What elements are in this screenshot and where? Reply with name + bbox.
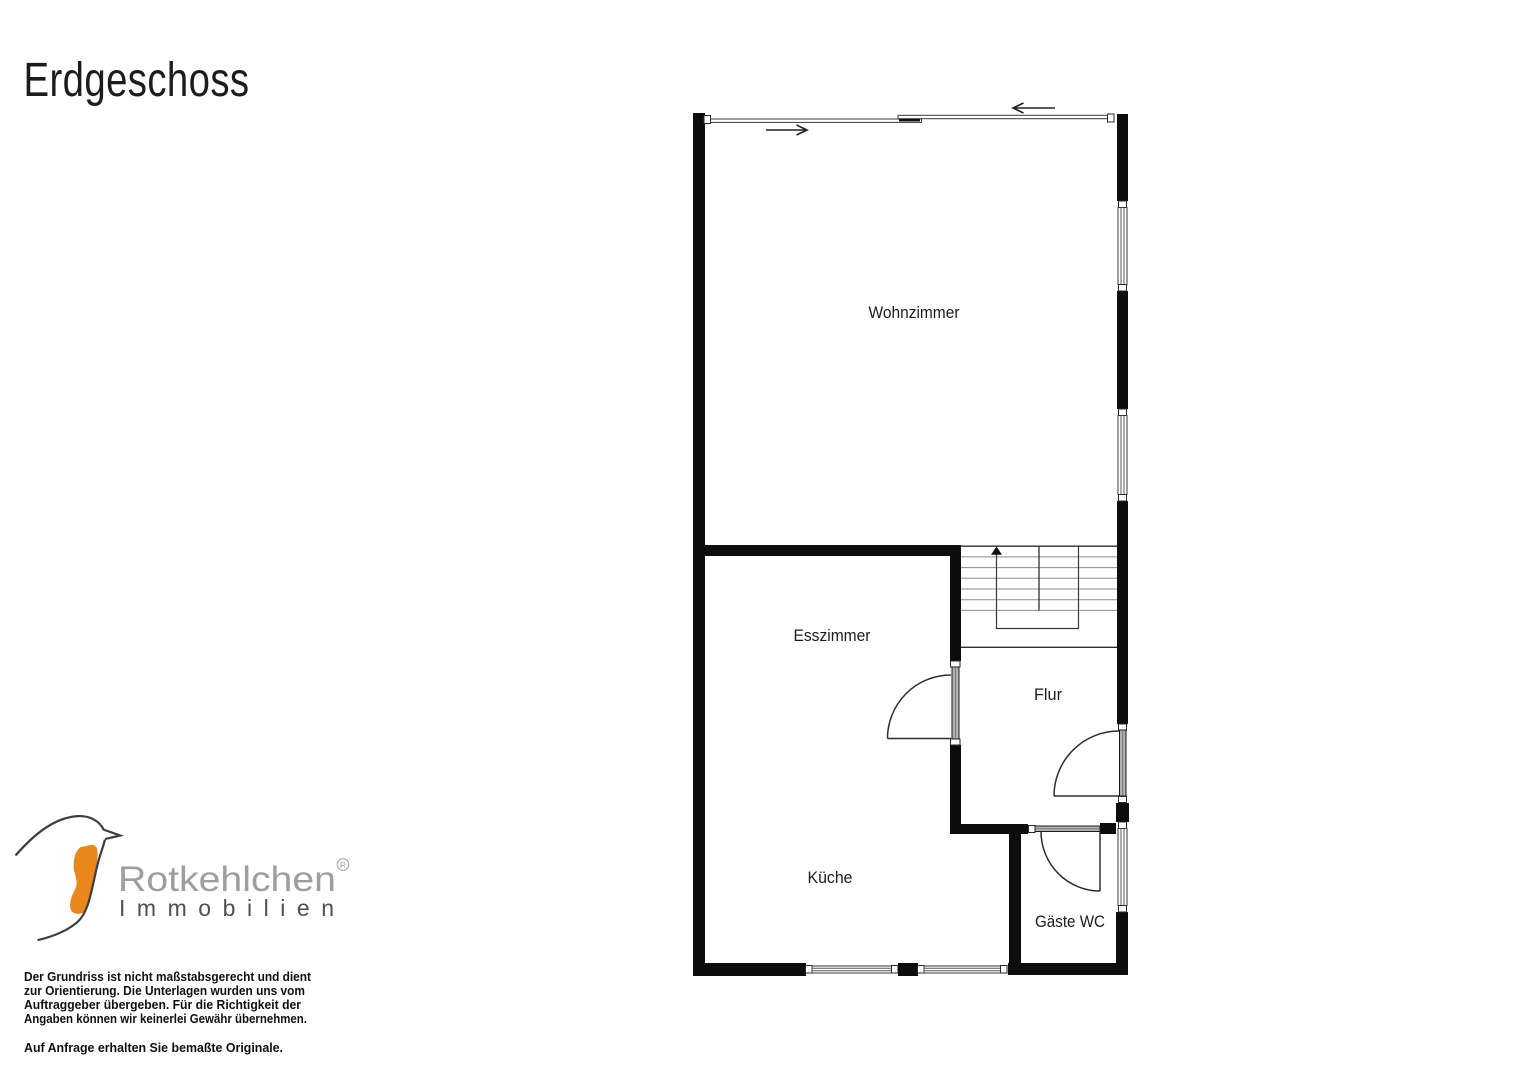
svg-text:Küche: Küche	[808, 868, 853, 887]
svg-text:Auftraggeber übergeben. Für di: Auftraggeber übergeben. Für die Richtigk…	[24, 998, 301, 1012]
svg-text:Erdgeschoss: Erdgeschoss	[24, 54, 250, 107]
svg-text:Wohnzimmer: Wohnzimmer	[869, 303, 960, 322]
svg-text:Immobilien: Immobilien	[119, 895, 334, 921]
svg-text:Angaben können wir keinerlei G: Angaben können wir keinerlei Gewähr über…	[24, 1012, 307, 1026]
svg-text:Gäste WC: Gäste WC	[1035, 912, 1105, 931]
svg-text:Flur: Flur	[1034, 685, 1062, 704]
svg-text:zur Orientierung. Die Unterlag: zur Orientierung. Die Unterlagen wurden …	[24, 984, 305, 998]
svg-text:Der Grundriss ist nicht maßsta: Der Grundriss ist nicht maßstabsgerecht …	[24, 970, 312, 984]
svg-text:Auf Anfrage erhalten Sie bemaß: Auf Anfrage erhalten Sie bemaßte Origina…	[24, 1041, 283, 1055]
svg-text:R: R	[340, 860, 346, 870]
svg-text:Esszimmer: Esszimmer	[794, 626, 871, 645]
svg-text:Rotkehlchen: Rotkehlchen	[118, 859, 336, 899]
